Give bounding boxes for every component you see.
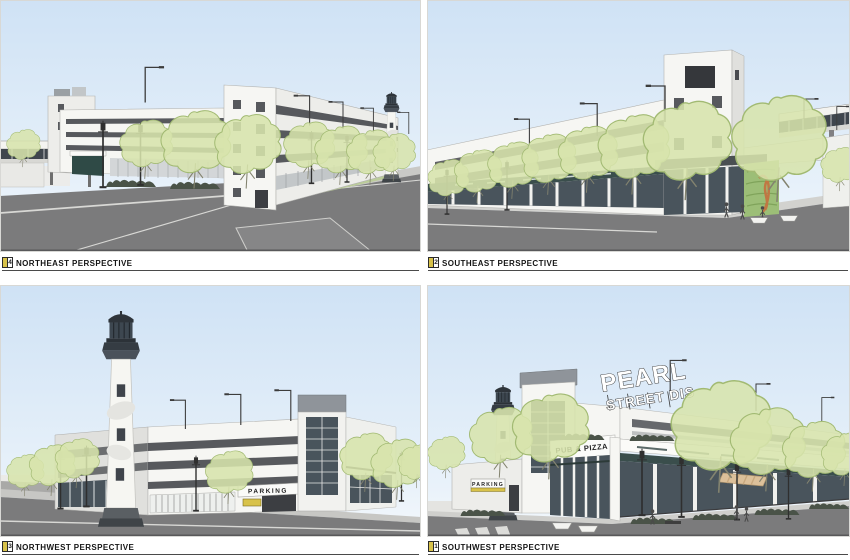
view-title: NORTHWEST PERSPECTIVE: [16, 543, 134, 552]
view-number-box: 1: [428, 541, 439, 552]
northeast-rendering: [0, 0, 421, 252]
bench: [665, 521, 681, 524]
view-number: 3: [8, 542, 12, 551]
view-number: 4: [8, 258, 12, 267]
view-number-box: 2: [428, 257, 439, 268]
view-title: NORTHEAST PERSPECTIVE: [16, 259, 132, 268]
southwest-rendering: PARKING PUB & PIZZA: [427, 285, 850, 537]
yellow-sign: [471, 488, 505, 492]
northwest-rendering: PARKING: [0, 285, 421, 537]
view-number-box: 4: [2, 257, 13, 268]
view-number: 2: [434, 258, 438, 267]
southeast-rendering: [427, 0, 850, 252]
left-wing: PARKING: [452, 459, 522, 513]
caption-northeast: 4 NORTHEAST PERSPECTIVE: [2, 255, 419, 271]
view-title: SOUTHEAST PERSPECTIVE: [442, 259, 558, 268]
parking-sign: PARKING: [248, 488, 288, 496]
view-number-box: 3: [2, 541, 13, 552]
caption-southeast: 2 SOUTHEAST PERSPECTIVE: [428, 255, 848, 271]
view-number: 1: [434, 542, 438, 551]
yellow-sign: [243, 499, 261, 506]
caption-southwest: 1 SOUTHWEST PERSPECTIVE: [428, 539, 848, 555]
parking-sign: PARKING: [472, 482, 504, 488]
caption-northwest: 3 NORTHWEST PERSPECTIVE: [2, 539, 419, 555]
view-title: SOUTHWEST PERSPECTIVE: [442, 543, 560, 552]
rendering-sheet: PARKING: [0, 0, 850, 560]
